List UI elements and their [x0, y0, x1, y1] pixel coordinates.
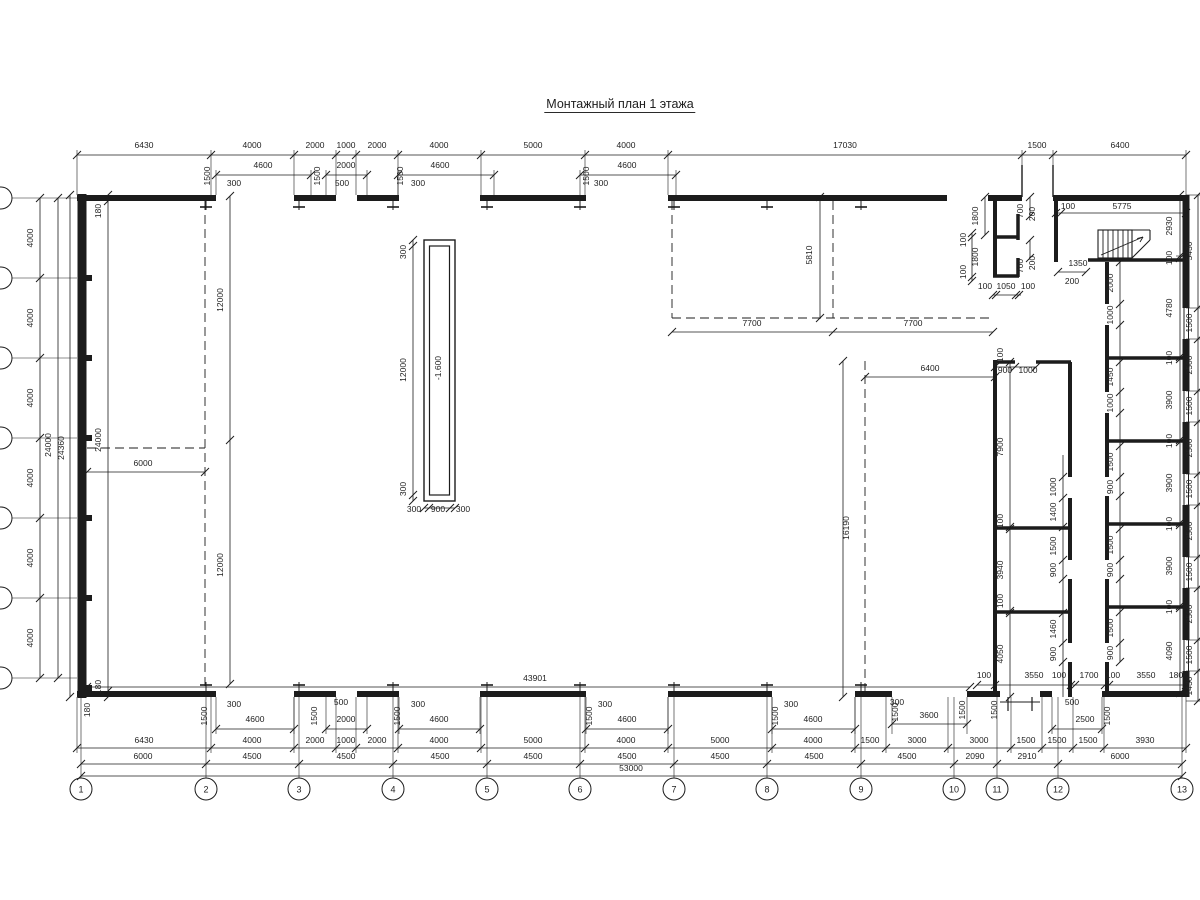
dim-label: 4000 — [430, 735, 449, 745]
dim-label: 1400 — [1048, 502, 1058, 521]
dim-label: 100 — [1164, 351, 1174, 365]
dim-label: 53000 — [619, 763, 643, 773]
dim-label: 7700 — [743, 318, 762, 328]
dim-label: 6400 — [921, 363, 940, 373]
axis-bubble-label: 5 — [484, 785, 489, 795]
dim-label: 200 — [1027, 207, 1037, 221]
axis-bubble — [0, 187, 12, 209]
dim-label: 4000 — [25, 228, 35, 247]
dim-label: 500 — [335, 178, 349, 188]
dim-label: 1000 — [1105, 393, 1115, 412]
axis-bubble-label: 13 — [1177, 785, 1187, 795]
witness-lines — [12, 150, 1200, 778]
dim-label: 1500 — [1184, 479, 1194, 498]
dim-label: 7700 — [904, 318, 923, 328]
dim-label: 4050 — [995, 644, 1005, 663]
dim-label: 1500 — [1184, 645, 1194, 664]
dim-label: 300 — [784, 699, 798, 709]
dim-label: 1000 — [337, 735, 356, 745]
axis-bubble-label: 11 — [992, 785, 1001, 795]
dim-label: 5810 — [804, 245, 814, 264]
dim-label: 4000 — [804, 735, 823, 745]
axis-grid: 12345678910111213 — [0, 187, 1193, 800]
dim-label: 3900 — [1164, 473, 1174, 492]
dim-label: 4000 — [243, 140, 262, 150]
dim-label: 4600 — [430, 714, 449, 724]
dim-label: 100 — [977, 670, 991, 680]
dim-label: 24360 — [56, 436, 66, 460]
dim-label: 2500 — [1184, 355, 1194, 374]
dim-label: 7900 — [995, 437, 1005, 456]
dim-label: 1500 — [1184, 562, 1194, 581]
dim-label: 4000 — [617, 735, 636, 745]
dim-label: 2500 — [1184, 521, 1194, 540]
walls — [77, 165, 1189, 711]
axis-bubble-label: 7 — [671, 785, 676, 795]
dim-label: 4600 — [254, 160, 273, 170]
dim-label: 1000 — [1105, 305, 1115, 324]
dim-label: 2000 — [368, 735, 387, 745]
dim-label: 1000 — [337, 140, 356, 150]
dim-label: 5000 — [524, 735, 543, 745]
axis-bubble — [0, 427, 12, 449]
dim-label: 180 — [82, 703, 92, 717]
dim-label: 4000 — [617, 140, 636, 150]
dim-label: 2500 — [1184, 604, 1194, 623]
dim-label: 1500 — [1048, 536, 1058, 555]
dim-label: 900 — [1048, 647, 1058, 661]
axis-bubble-label: 9 — [858, 785, 863, 795]
dim-label: 2090 — [966, 751, 985, 761]
dim-label: 2910 — [1018, 751, 1037, 761]
dim-label: 4500 — [805, 751, 824, 761]
axis-bubble-label: 1 — [78, 785, 83, 795]
dim-label: 1800 — [970, 247, 980, 266]
dim-label: 6430 — [135, 735, 154, 745]
axis-bubble — [0, 267, 12, 289]
dim-label: 1430 — [1184, 676, 1194, 695]
dim-label: 300 — [411, 178, 425, 188]
dim-label: 4600 — [431, 160, 450, 170]
dim-label: 4780 — [1164, 298, 1174, 317]
dim-label: 6000 — [1111, 751, 1130, 761]
dim-label: 700 — [1015, 204, 1025, 218]
dim-label: 1500 — [202, 166, 212, 185]
dim-label: 3930 — [1136, 735, 1155, 745]
dim-label: 1500 — [584, 706, 594, 725]
dashed-axes — [87, 201, 993, 694]
dim-label: 1500 — [1028, 140, 1047, 150]
dim-label: 1500 — [957, 700, 967, 719]
dim-label: 1500 — [199, 706, 209, 725]
dim-label: 4500 — [337, 751, 356, 761]
dim-label: 900 — [998, 365, 1012, 375]
dim-label: 300 — [398, 245, 408, 259]
column-marks — [86, 195, 867, 697]
dim-label: 1500 — [1105, 452, 1115, 471]
dim-label: 3550 — [1137, 670, 1156, 680]
axis-bubble-label: 2 — [203, 785, 208, 795]
dim-label: 100 — [1052, 670, 1066, 680]
dim-label: 5000 — [711, 735, 730, 745]
dim-label: 300 — [456, 504, 470, 514]
dim-label: 100 — [958, 233, 968, 247]
dim-label: 5775 — [1113, 201, 1132, 211]
dim-label: 100 — [995, 594, 1005, 608]
dim-label: 5430 — [1184, 241, 1194, 260]
dim-label: 4000 — [25, 548, 35, 567]
dim-label: 100 — [1164, 517, 1174, 531]
dim-label: 200 — [1065, 276, 1079, 286]
dim-label: 900 — [1048, 563, 1058, 577]
dim-label: 3600 — [920, 710, 939, 720]
dim-label: -1.600 — [433, 356, 443, 380]
dim-label: 3550 — [1025, 670, 1044, 680]
dim-label: 900 — [431, 504, 445, 514]
axis-bubble — [0, 587, 12, 609]
dim-label: 300 — [407, 504, 421, 514]
dim-label: 6000 — [134, 751, 153, 761]
dim-label: 4500 — [618, 751, 637, 761]
dim-label: 4600 — [246, 714, 265, 724]
dim-label: 2000 — [337, 714, 356, 724]
dim-label: 1000 — [1019, 365, 1038, 375]
dim-label: 900 — [1105, 563, 1115, 577]
dim-label: 900 — [1105, 480, 1115, 494]
dim-label: 1500 — [309, 706, 319, 725]
dim-label: 17030 — [833, 140, 857, 150]
dim-label: 100 — [1061, 201, 1075, 211]
dim-label: 43901 — [523, 673, 547, 683]
dim-label: 5000 — [524, 140, 543, 150]
dim-label: 4000 — [25, 628, 35, 647]
dim-label: 100 — [995, 514, 1005, 528]
dim-label: 6430 — [135, 140, 154, 150]
dim-label: 4600 — [618, 714, 637, 724]
axis-bubble — [0, 667, 12, 689]
dim-label: 100 — [978, 281, 992, 291]
axis-bubble-label: 4 — [390, 785, 395, 795]
dim-label: 4090 — [1164, 641, 1174, 660]
dim-label: 2000 — [306, 735, 325, 745]
dim-label: 100 — [995, 348, 1005, 362]
dim-label: 2000 — [1105, 273, 1115, 292]
dim-label: 100 — [1164, 434, 1174, 448]
dim-label: 180 — [93, 680, 103, 694]
dim-label: 2500 — [1076, 714, 1095, 724]
axis-bubble-label: 12 — [1053, 785, 1063, 795]
dim-label: 500 — [334, 697, 348, 707]
dim-label: 16190 — [841, 516, 851, 540]
axis-bubble-label: 8 — [764, 785, 769, 795]
dim-label: 24000 — [93, 428, 103, 452]
dim-label: 1500 — [1102, 706, 1112, 725]
dim-label: 1500 — [1105, 535, 1115, 554]
dim-label: 300 — [411, 699, 425, 709]
axis-bubble-label: 6 — [577, 785, 582, 795]
dim-label: 3900 — [1164, 390, 1174, 409]
dim-label: 900 — [1105, 646, 1115, 660]
dim-label: 1050 — [997, 281, 1016, 291]
dim-label: 1350 — [1069, 258, 1088, 268]
dim-label: 4600 — [618, 160, 637, 170]
dim-label: 1500 — [770, 706, 780, 725]
floor-plan-canvas: 1234567891011121364304000200010002000400… — [0, 0, 1200, 900]
dim-label: 4500 — [524, 751, 543, 761]
dim-label: 100 — [1164, 600, 1174, 614]
dim-label: 100 — [958, 265, 968, 279]
dim-label: 1800 — [970, 206, 980, 225]
dim-label: 300 — [227, 178, 241, 188]
dim-label: 180 — [93, 204, 103, 218]
dim-label: 200 — [1027, 256, 1037, 270]
dim-label: 12000 — [398, 358, 408, 382]
dim-label: 1500 — [395, 166, 405, 185]
dim-label: 1500 — [1184, 396, 1194, 415]
axis-bubble — [0, 507, 12, 529]
dim-label: 1500 — [1048, 735, 1067, 745]
axis-bubble — [0, 347, 12, 369]
dim-label: 6400 — [1111, 140, 1130, 150]
dim-label: 1000 — [1048, 477, 1058, 496]
dim-label: 2500 — [1184, 438, 1194, 457]
dim-label: 1500 — [1184, 313, 1194, 332]
dim-label: 4000 — [25, 388, 35, 407]
drawing-sheet: Монтажный план 1 этажа 12345678910111213… — [0, 0, 1200, 900]
stairs — [1098, 230, 1150, 258]
dim-label: 2000 — [337, 160, 356, 170]
dim-label: 1500 — [312, 166, 322, 185]
dim-label: 12000 — [215, 288, 225, 312]
dim-label: 4500 — [243, 751, 262, 761]
dim-label: 1700 — [1080, 670, 1099, 680]
dim-label: 2930 — [1164, 216, 1174, 235]
dim-label: 4000 — [25, 468, 35, 487]
dim-label: 300 — [398, 482, 408, 496]
dim-label: 3940 — [995, 560, 1005, 579]
dim-label: 300 — [594, 178, 608, 188]
dim-label: 100 — [1164, 251, 1174, 265]
dim-label: 4500 — [711, 751, 730, 761]
dim-label: 2000 — [306, 140, 325, 150]
dim-label: 300 — [227, 699, 241, 709]
dim-label: 1450 — [1105, 367, 1115, 386]
axis-bubble-label: 3 — [296, 785, 301, 795]
dim-label: 4600 — [804, 714, 823, 724]
dim-label: 300 — [598, 699, 612, 709]
dim-label: 6000 — [134, 458, 153, 468]
dim-label: 1500 — [1017, 735, 1036, 745]
dim-label: 100 — [1106, 670, 1120, 680]
dim-label: 4500 — [431, 751, 450, 761]
dim-label: 3000 — [908, 735, 927, 745]
dim-label: 180 — [1169, 670, 1183, 680]
dim-label: 1500 — [1079, 735, 1098, 745]
dim-label: 1500 — [392, 706, 402, 725]
dim-label: 4000 — [243, 735, 262, 745]
dim-label: 12000 — [215, 553, 225, 577]
dim-label: 3900 — [1164, 556, 1174, 575]
dim-label: 24000 — [43, 433, 53, 457]
dim-label: 1500 — [861, 735, 880, 745]
dim-label: 3000 — [970, 735, 989, 745]
dim-label: 100 — [1021, 281, 1035, 291]
dim-label: 1500 — [890, 702, 900, 721]
dim-label: 1500 — [581, 166, 591, 185]
dim-label: 4500 — [898, 751, 917, 761]
dim-label: 1500 — [1105, 618, 1115, 637]
dim-label: 4000 — [430, 140, 449, 150]
dim-label: 1460 — [1048, 619, 1058, 638]
dim-label: 1500 — [989, 700, 999, 719]
dim-label: 700 — [1015, 259, 1025, 273]
dim-label: 2000 — [368, 140, 387, 150]
dim-label: 500 — [1065, 697, 1079, 707]
dim-label: 4000 — [25, 308, 35, 327]
axis-bubble-label: 10 — [949, 785, 959, 795]
